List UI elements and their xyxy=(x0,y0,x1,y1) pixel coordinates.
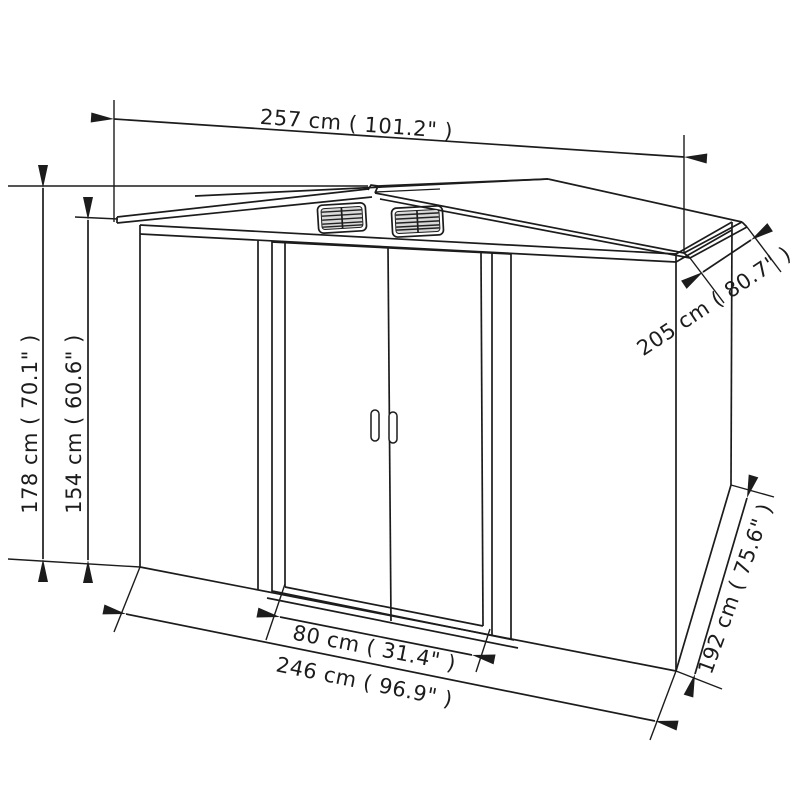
shed-walls xyxy=(140,222,732,671)
roof-vent-right-icon xyxy=(391,206,443,238)
shed-drawing xyxy=(117,179,747,671)
dimension-label-base-depth: 192 cm ( 75.6" ) xyxy=(693,500,777,677)
door-handle-left-icon xyxy=(371,410,379,441)
dimension-label-roof-depth: 205 cm ( 80.7" ) xyxy=(633,242,796,361)
sliding-doors xyxy=(258,240,518,648)
roof-vent-left-icon xyxy=(317,203,367,234)
dimension-eave-height: 154 cm ( 60.6" ) xyxy=(62,217,118,560)
dimension-label-overall-height: 178 cm ( 70.1" ) xyxy=(18,334,42,514)
dimension-label-roof-width: 257 cm ( 101.2" ) xyxy=(259,105,454,143)
door-handle-right-icon xyxy=(389,412,397,443)
dimension-label-eave-height: 154 cm ( 60.6" ) xyxy=(62,334,86,514)
shed-dimension-diagram: 257 cm ( 101.2" ) 178 cm ( 70.1" ) 154 c… xyxy=(0,0,800,800)
diagram-canvas: 257 cm ( 101.2" ) 178 cm ( 70.1" ) 154 c… xyxy=(0,0,800,800)
dimension-base-depth: 192 cm ( 75.6" ) xyxy=(676,485,777,689)
